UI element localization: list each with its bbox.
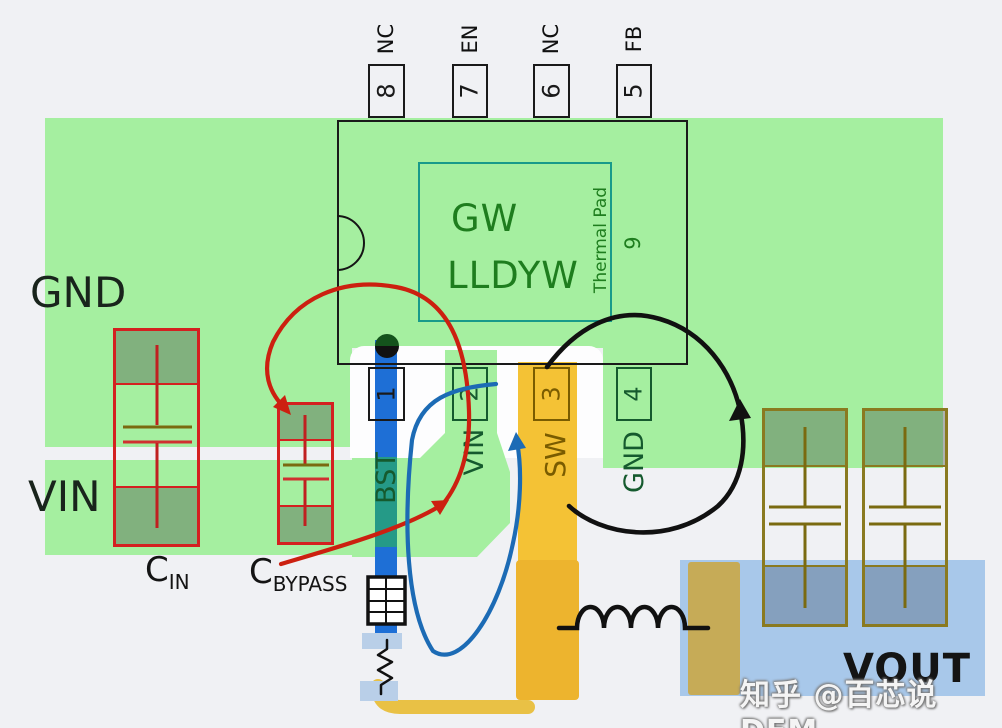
cout2-bottom-pad (865, 565, 945, 624)
pin-3-name: SW (540, 395, 570, 515)
pin-8-name: NC (371, 0, 401, 89)
thermal-pad-number: 9 (618, 213, 648, 273)
resistor-symbol (378, 640, 392, 694)
resistor-pad-bottom (360, 681, 398, 701)
cbypass-footprint (277, 402, 334, 545)
cout2-footprint (862, 408, 948, 627)
cin-label-c: C (145, 550, 169, 590)
cbypass-label-sub: BYPASS (273, 572, 348, 596)
pcb-layout-diagram: GW LLDYW Thermal Pad 9 8 7 6 5 NC EN NC … (0, 0, 1002, 728)
cbypass-bottom-pad (280, 505, 331, 542)
cbypass-label: CBYPASS (249, 552, 347, 596)
cin-label-sub: IN (169, 570, 190, 594)
thermal-pad-label: Thermal Pad (586, 170, 616, 310)
sw-inductor-pad (516, 560, 579, 700)
watermark: 知乎 @百芯说DFM (740, 670, 1002, 728)
ic-marking-line2: LLDYW (447, 247, 579, 304)
cin-bottom-pad (116, 486, 197, 544)
ic-marking-line1: GW (451, 190, 518, 247)
gnd-label: GND (30, 268, 126, 317)
pin-1-number: 1 (373, 386, 401, 401)
cbypass-label-c: C (249, 552, 273, 592)
pin-2-name: VIN (459, 392, 489, 512)
pin-4-number: 4 (620, 386, 648, 401)
vin-label: VIN (28, 472, 101, 521)
pin-6-name: NC (536, 0, 566, 89)
pin-1-box: 1 (368, 367, 405, 421)
cin-label: CIN (145, 550, 190, 594)
cbypass-top-pad (280, 405, 331, 441)
cout1-bottom-pad (765, 565, 845, 624)
pin-1-name: BST (371, 418, 401, 538)
cin-footprint (113, 328, 200, 547)
pin-7-name: EN (455, 0, 485, 89)
inductor-output-pad (688, 562, 740, 695)
sw-return-trace (378, 686, 528, 707)
cout2-top-pad (865, 411, 945, 467)
cout1-top-pad (765, 411, 845, 467)
pin-5-name: FB (619, 0, 649, 89)
pin-4-name: GND (619, 402, 649, 522)
cout1-footprint (762, 408, 848, 627)
cin-top-pad (116, 331, 197, 385)
